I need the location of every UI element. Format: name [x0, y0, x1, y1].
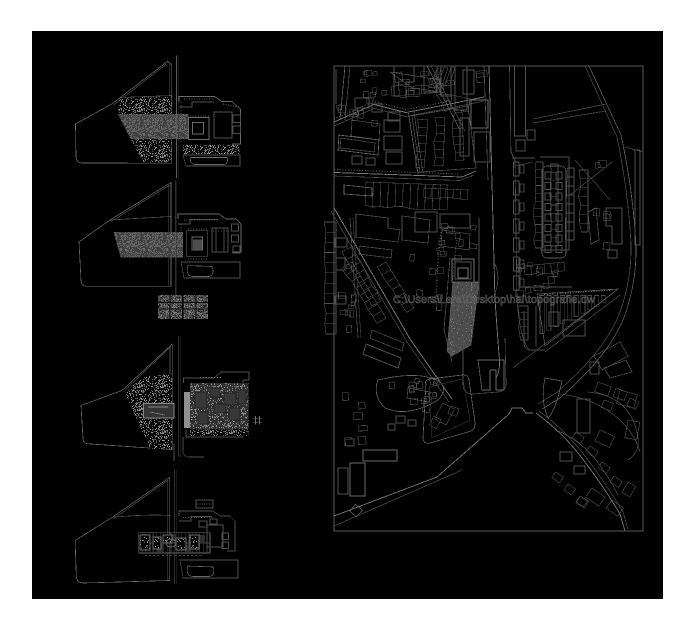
svg-text:C:\Users\Lara\Desktop\hal\topo: C:\Users\Lara\Desktop\hal\topografie.dw: [393, 294, 595, 306]
